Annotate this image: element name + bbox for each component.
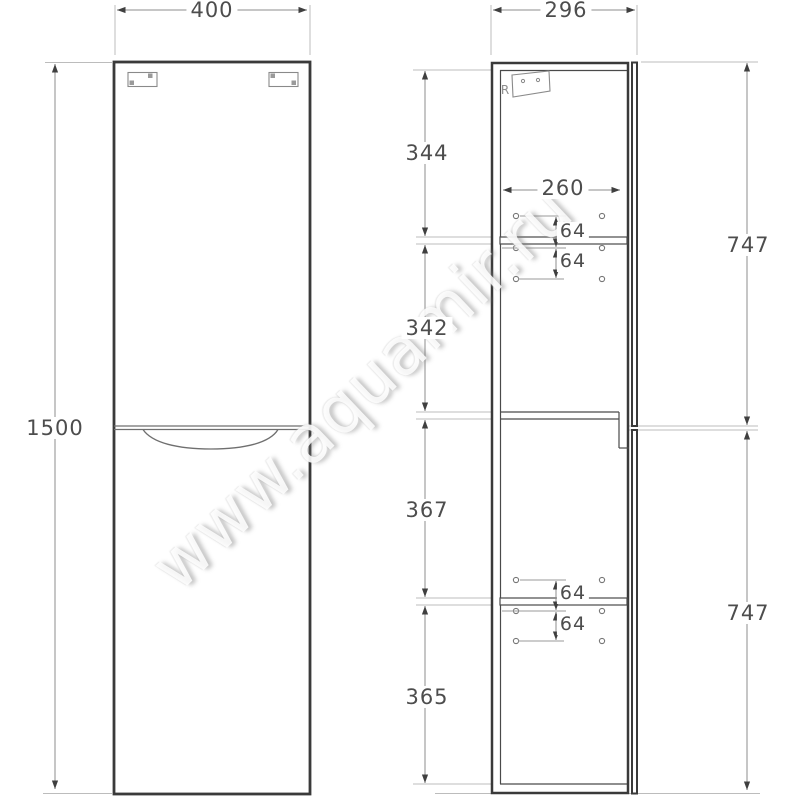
dim-label-front-height: 1500 (22, 417, 87, 439)
front-view (114, 62, 310, 794)
dim-label-section-3: 367 (401, 499, 452, 521)
drawing-geometry (0, 0, 800, 800)
dim-label-hole-spacing-1: 64 (557, 222, 589, 242)
dim-label-section-1: 344 (401, 142, 452, 164)
dim-label-interior-width: 260 (537, 177, 588, 199)
bracket-mark-label: R (501, 83, 509, 97)
front-cabinet-outline (114, 62, 310, 794)
dim-label-hole-spacing-2: 64 (557, 252, 589, 272)
dim-label-section-4: 365 (401, 686, 452, 708)
cabinet-technical-drawing: www.aquamir.ru 400 296 1500 344 342 367 … (0, 0, 800, 800)
side-cabinet-body (492, 63, 628, 793)
dim-label-section-2: 342 (401, 317, 452, 339)
dim-label-hole-spacing-3: 64 (557, 584, 589, 604)
side-view (492, 63, 637, 794)
dim-label-front-width: 400 (186, 0, 237, 21)
dim-label-side-depth: 296 (540, 0, 591, 21)
side-door-panels (632, 63, 637, 794)
dim-label-hole-spacing-4: 64 (557, 615, 589, 635)
dim-label-lower-door: 747 (722, 602, 773, 624)
dim-label-upper-door: 747 (722, 234, 773, 256)
